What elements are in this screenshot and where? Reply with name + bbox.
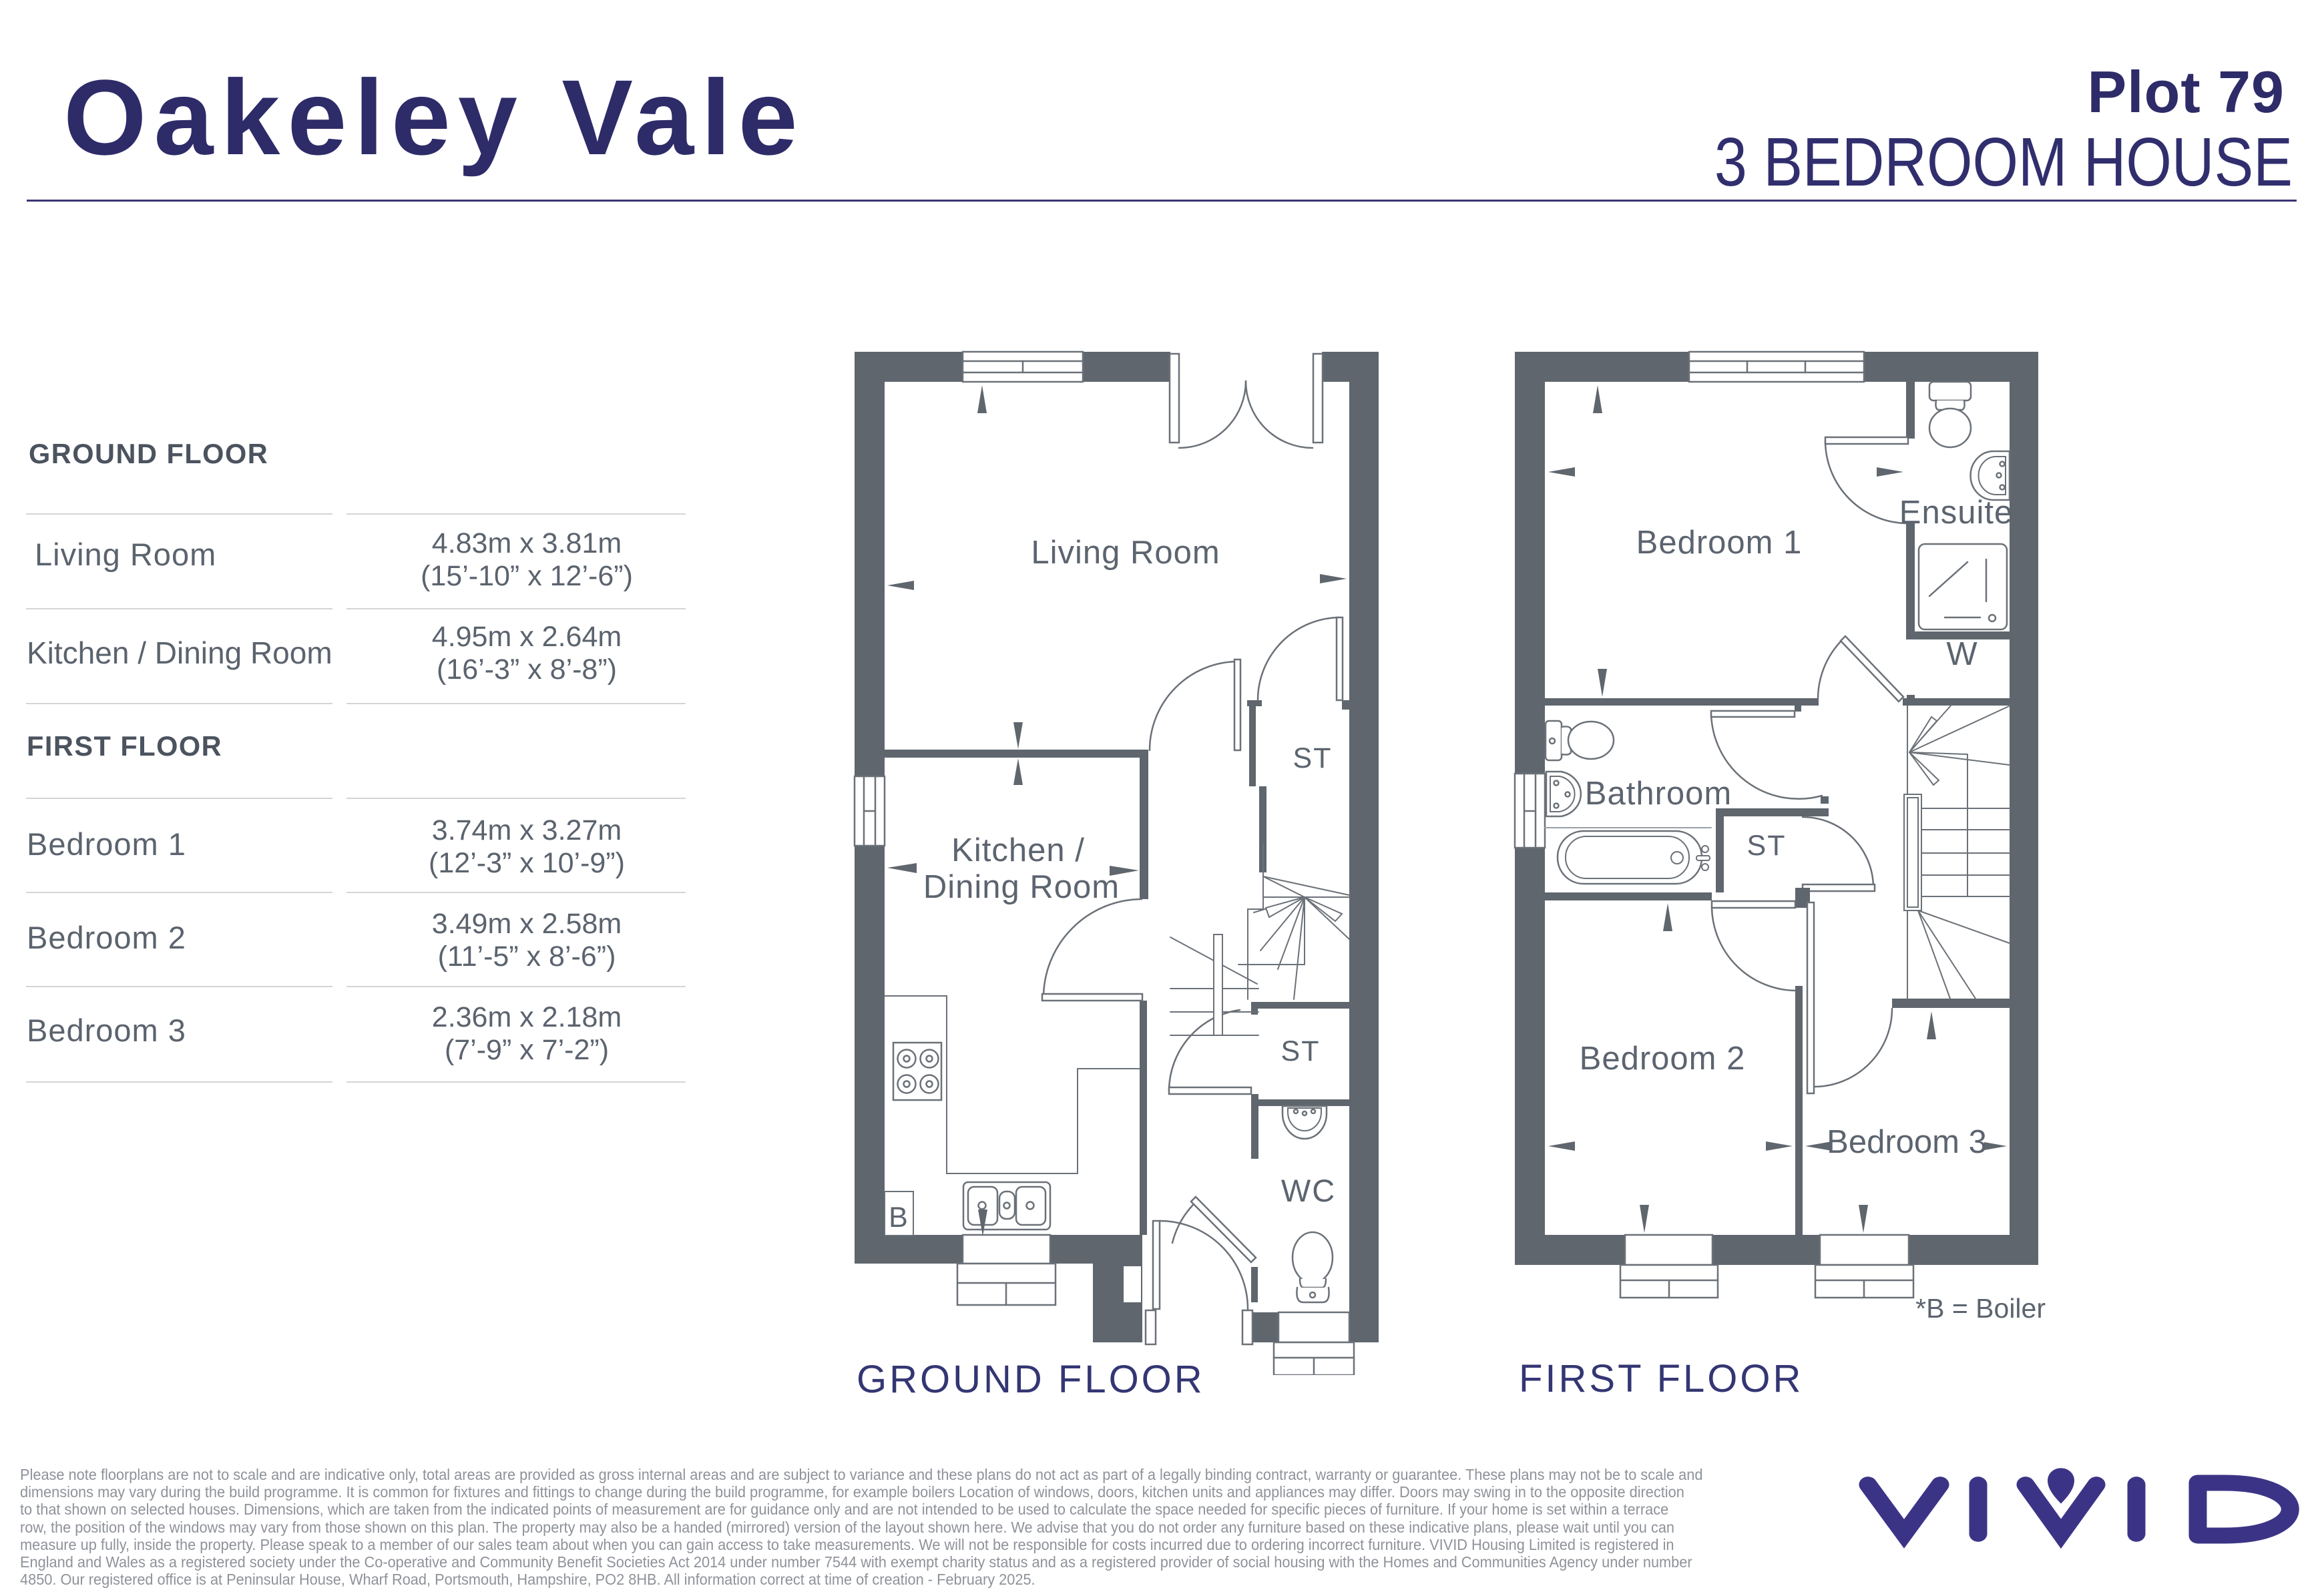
svg-text:Bedroom 3: Bedroom 3 xyxy=(1827,1124,1987,1160)
svg-text:Dining Room: Dining Room xyxy=(923,869,1120,905)
svg-text:WC: WC xyxy=(1281,1173,1336,1208)
svg-text:Bedroom 1: Bedroom 1 xyxy=(1636,525,1803,561)
svg-text:Kitchen /: Kitchen / xyxy=(951,832,1085,868)
svg-text:Bedroom 2: Bedroom 2 xyxy=(1580,1041,1746,1077)
svg-text:ST: ST xyxy=(1293,742,1333,774)
svg-text:Living Room: Living Room xyxy=(1031,535,1220,571)
svg-text:Bathroom: Bathroom xyxy=(1585,776,1732,812)
svg-text:ST: ST xyxy=(1281,1035,1321,1067)
svg-text:ST: ST xyxy=(1747,830,1787,862)
svg-text:W: W xyxy=(1946,636,1978,672)
svg-text:B: B xyxy=(889,1202,909,1234)
svg-text:Ensuite: Ensuite xyxy=(1899,495,2013,531)
